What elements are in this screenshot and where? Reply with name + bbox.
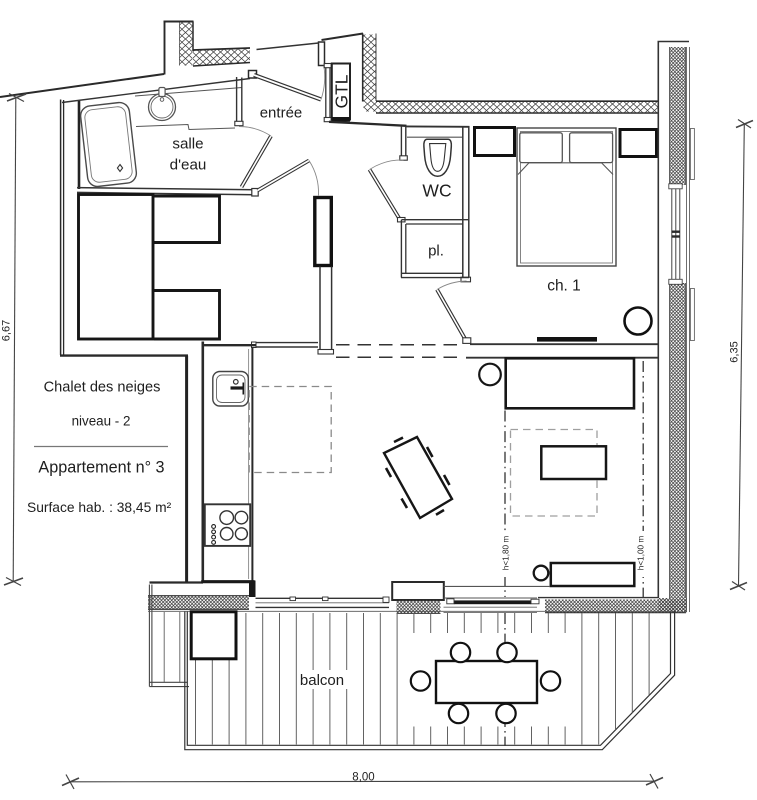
svg-text:salle: salle <box>172 136 203 153</box>
svg-text:GTL: GTL <box>331 74 351 108</box>
svg-text:6,35: 6,35 <box>729 341 741 362</box>
svg-text:Surface hab. : 38,45 m²: Surface hab. : 38,45 m² <box>27 500 172 515</box>
svg-text:Chalet des neiges: Chalet des neiges <box>44 380 161 396</box>
svg-text:Appartement n° 3: Appartement n° 3 <box>38 459 164 477</box>
svg-text:8,00: 8,00 <box>352 772 374 784</box>
svg-text:h<1,00 m: h<1,00 m <box>637 536 646 571</box>
svg-text:d'eau: d'eau <box>170 157 207 174</box>
svg-text:6,67: 6,67 <box>1 320 13 341</box>
svg-text:h<1,80 m: h<1,80 m <box>502 536 511 571</box>
svg-text:entrée: entrée <box>260 105 303 122</box>
svg-text:balcon: balcon <box>300 672 344 689</box>
svg-text:ch. 1: ch. 1 <box>547 278 581 295</box>
svg-text:niveau - 2: niveau - 2 <box>72 414 131 429</box>
svg-text:WC: WC <box>422 181 451 201</box>
svg-text:pl.: pl. <box>428 243 444 260</box>
